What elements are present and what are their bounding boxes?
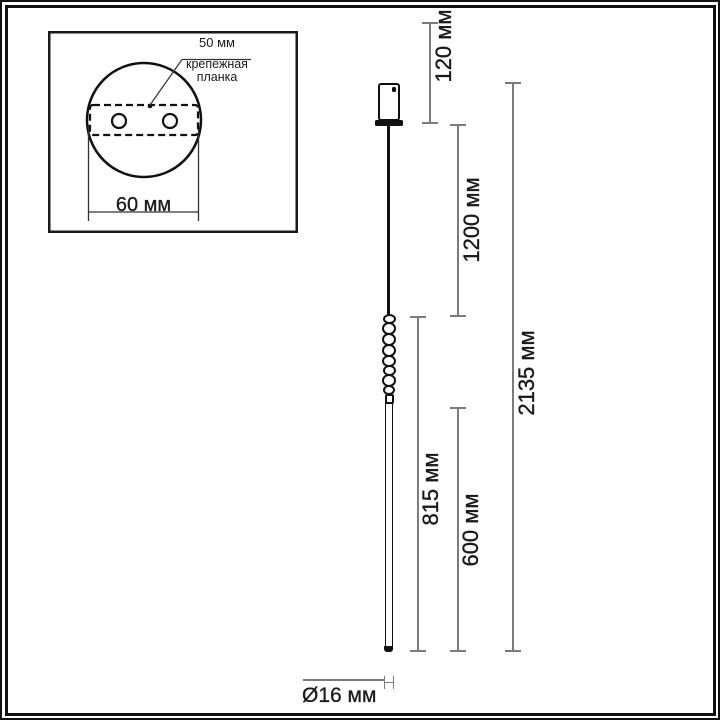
canopy-width-label: 60 мм <box>88 194 199 217</box>
diameter-leader-line <box>303 679 384 681</box>
tube-diameter-label: Ø16 мм <box>302 684 376 708</box>
plate-caption: крепежная планка <box>176 58 258 83</box>
plate-caption-line2: планка <box>176 71 258 84</box>
canopy-height-label: 120 мм <box>431 9 457 82</box>
light-tube-tip <box>384 646 393 652</box>
suspension-cable <box>387 126 390 316</box>
cable-length-label: 1200 мм <box>459 177 485 262</box>
total-height-label: 2135 мм <box>514 330 540 415</box>
decorative-bead-stack <box>382 314 396 404</box>
tube-section-label: 600 мм <box>458 493 484 566</box>
screw-hole-left <box>112 114 126 128</box>
canopy-screw-mark <box>392 87 396 92</box>
diameter-bracket-bar <box>384 682 394 684</box>
dimension-diagram: 50 мм крепежная планка 60 мм 120 мм 1200… <box>0 0 720 720</box>
light-tube <box>385 403 393 647</box>
ceiling-canopy <box>378 83 400 121</box>
screw-hole-right <box>163 114 177 128</box>
decorative-section-label: 815 мм <box>418 452 444 525</box>
plate-offset-label: 50 мм <box>178 36 256 50</box>
mounting-plate-outline <box>90 105 198 135</box>
plate-caption-line1: крепежная <box>176 58 258 71</box>
